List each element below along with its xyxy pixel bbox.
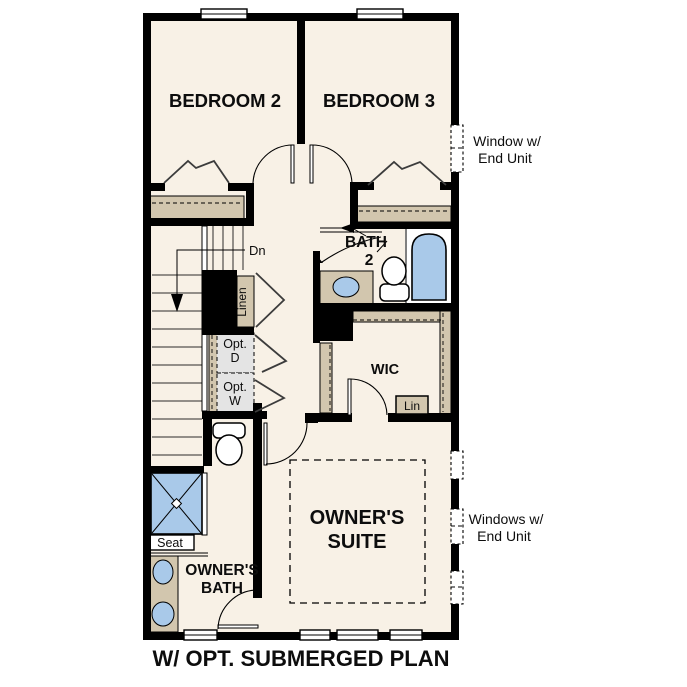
- end-unit-window: [451, 571, 463, 604]
- wic-door-leaf: [348, 379, 351, 415]
- bath2-label-line1: BATH: [345, 234, 387, 251]
- bottom-window: [184, 630, 217, 640]
- top-window: [357, 9, 403, 19]
- window-note-top-line1: Window w/: [473, 133, 541, 149]
- wic-label: WIC: [371, 362, 400, 378]
- window-note-bottom-line2: End Unit: [477, 528, 531, 544]
- linen-label: Linen: [235, 287, 249, 316]
- floor-plan-page: BEDROOM 2 BEDROOM 3 BATH 2 WIC Lin Linen…: [0, 0, 687, 687]
- bottom-window: [337, 630, 378, 640]
- bath2-toilet: [380, 257, 409, 301]
- seat-label: Seat: [157, 536, 183, 550]
- bedroom3-closet-shelf: [357, 206, 451, 222]
- window-note-bottom-line1: Windows w/: [469, 511, 544, 527]
- owners-bath-door-leaf: [218, 625, 258, 628]
- bathtub: [412, 234, 446, 300]
- opt-washer-label-line1: Opt.: [223, 380, 247, 394]
- opt-dryer-label-line1: Opt.: [223, 337, 247, 351]
- owners-sink-2: [152, 602, 174, 626]
- bedroom-divider-wall: [297, 13, 305, 144]
- stairs-down-label: Dn: [249, 243, 266, 258]
- owners-bath-label-line1: OWNER'S: [185, 562, 258, 579]
- bath2-label-line2: 2: [365, 252, 374, 269]
- bottom-window: [300, 630, 330, 640]
- bath2-sink: [333, 277, 359, 297]
- bottom-window: [390, 630, 422, 640]
- shower: [151, 473, 202, 534]
- end-unit-window: [451, 509, 463, 544]
- owners-toilet: [213, 423, 245, 465]
- opt-washer-label-line2: W: [229, 394, 241, 408]
- bedroom2-closet-shelf: [150, 196, 244, 219]
- top-window: [201, 9, 247, 19]
- owners-suite-label-line1: OWNER'S: [310, 507, 405, 529]
- end-unit-window: [451, 125, 463, 172]
- window-note-top-line2: End Unit: [478, 150, 532, 166]
- owners-suite-label-line2: SUITE: [328, 531, 387, 553]
- opt-dryer-label-line2: D: [230, 351, 239, 365]
- bedroom3-door-leaf: [310, 145, 313, 183]
- floor-plan-drawing: BEDROOM 2 BEDROOM 3 BATH 2 WIC Lin Linen…: [0, 0, 687, 687]
- owners-sink-1: [153, 560, 173, 584]
- bedroom2-label: BEDROOM 2: [169, 90, 281, 111]
- wic-shelf-right: [440, 311, 451, 415]
- owners-suite-door-leaf: [264, 423, 267, 465]
- end-unit-window: [451, 451, 463, 479]
- bedroom3-label: BEDROOM 3: [323, 90, 435, 111]
- lin-label: Lin: [404, 399, 420, 413]
- owners-bath-label-line2: BATH: [201, 580, 243, 597]
- bedroom2-door-leaf: [291, 145, 294, 183]
- plan-title: W/ OPT. SUBMERGED PLAN: [152, 646, 449, 671]
